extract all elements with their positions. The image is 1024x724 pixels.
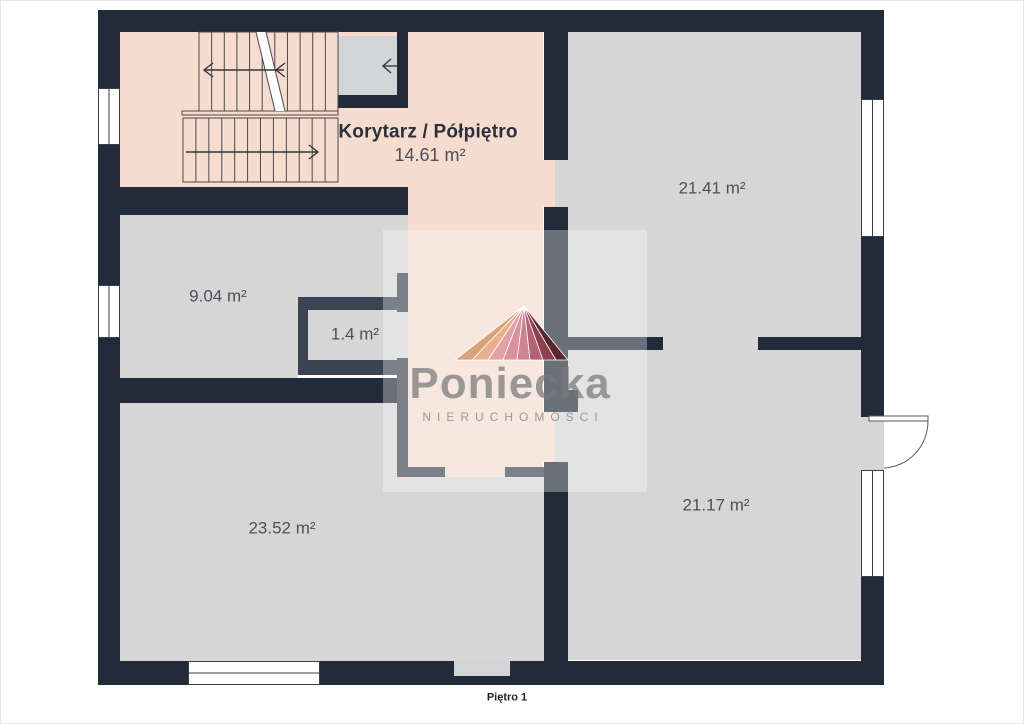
- balcony-door-arc: [884, 421, 928, 468]
- wall-closet-right: [397, 32, 408, 108]
- wall-stairs-bottom: [98, 187, 408, 215]
- stairs-landing-edge: [182, 111, 338, 115]
- floor-room-2352-lower: [397, 477, 545, 661]
- floor-doorway-between-rooms: [663, 337, 758, 350]
- wall-right-a: [861, 10, 884, 99]
- wall-between-2141-2117-b: [758, 337, 861, 350]
- room-label-area-2117: 21.17 m²: [682, 497, 749, 514]
- wall-top: [98, 10, 884, 32]
- floor-level-label: Piętro 1: [487, 693, 527, 704]
- wall-right-b: [861, 237, 884, 417]
- wall-904-bottom: [98, 378, 408, 403]
- wall-left-a: [98, 10, 120, 88]
- watermark-brand: Poniecka: [409, 362, 610, 406]
- room-label-area-904: 9.04 m²: [189, 288, 247, 305]
- floor-balcony-threshold: [861, 417, 884, 470]
- wall-bottom-a: [98, 661, 188, 685]
- wall-mid-a: [544, 32, 568, 160]
- floorplan-canvas: Korytarz / Półpiętro 14.61 m² 21.41 m² 9…: [0, 0, 1024, 724]
- floor-room-904-upper: [120, 215, 408, 297]
- room-label-korytarz-name: Korytarz / Półpiętro: [338, 123, 517, 142]
- floor-doorway-2141-a: [543, 160, 555, 207]
- wall-bottom-b: [320, 661, 884, 685]
- floor-doorway-2141-b: [555, 160, 568, 207]
- room-label-area-2141: 21.41 m²: [678, 180, 745, 197]
- room-label-area-14: 1.4 m²: [331, 326, 379, 343]
- room-label-korytarz-area: 14.61 m²: [394, 146, 465, 164]
- room-label-area-2352: 23.52 m²: [248, 520, 315, 537]
- watermark-subtitle: NIERUCHOMOŚCI: [422, 411, 603, 423]
- door-opening-bottom: [454, 661, 510, 676]
- floor-room-904-lower: [120, 297, 298, 378]
- balcony-door-leaf: [869, 416, 928, 421]
